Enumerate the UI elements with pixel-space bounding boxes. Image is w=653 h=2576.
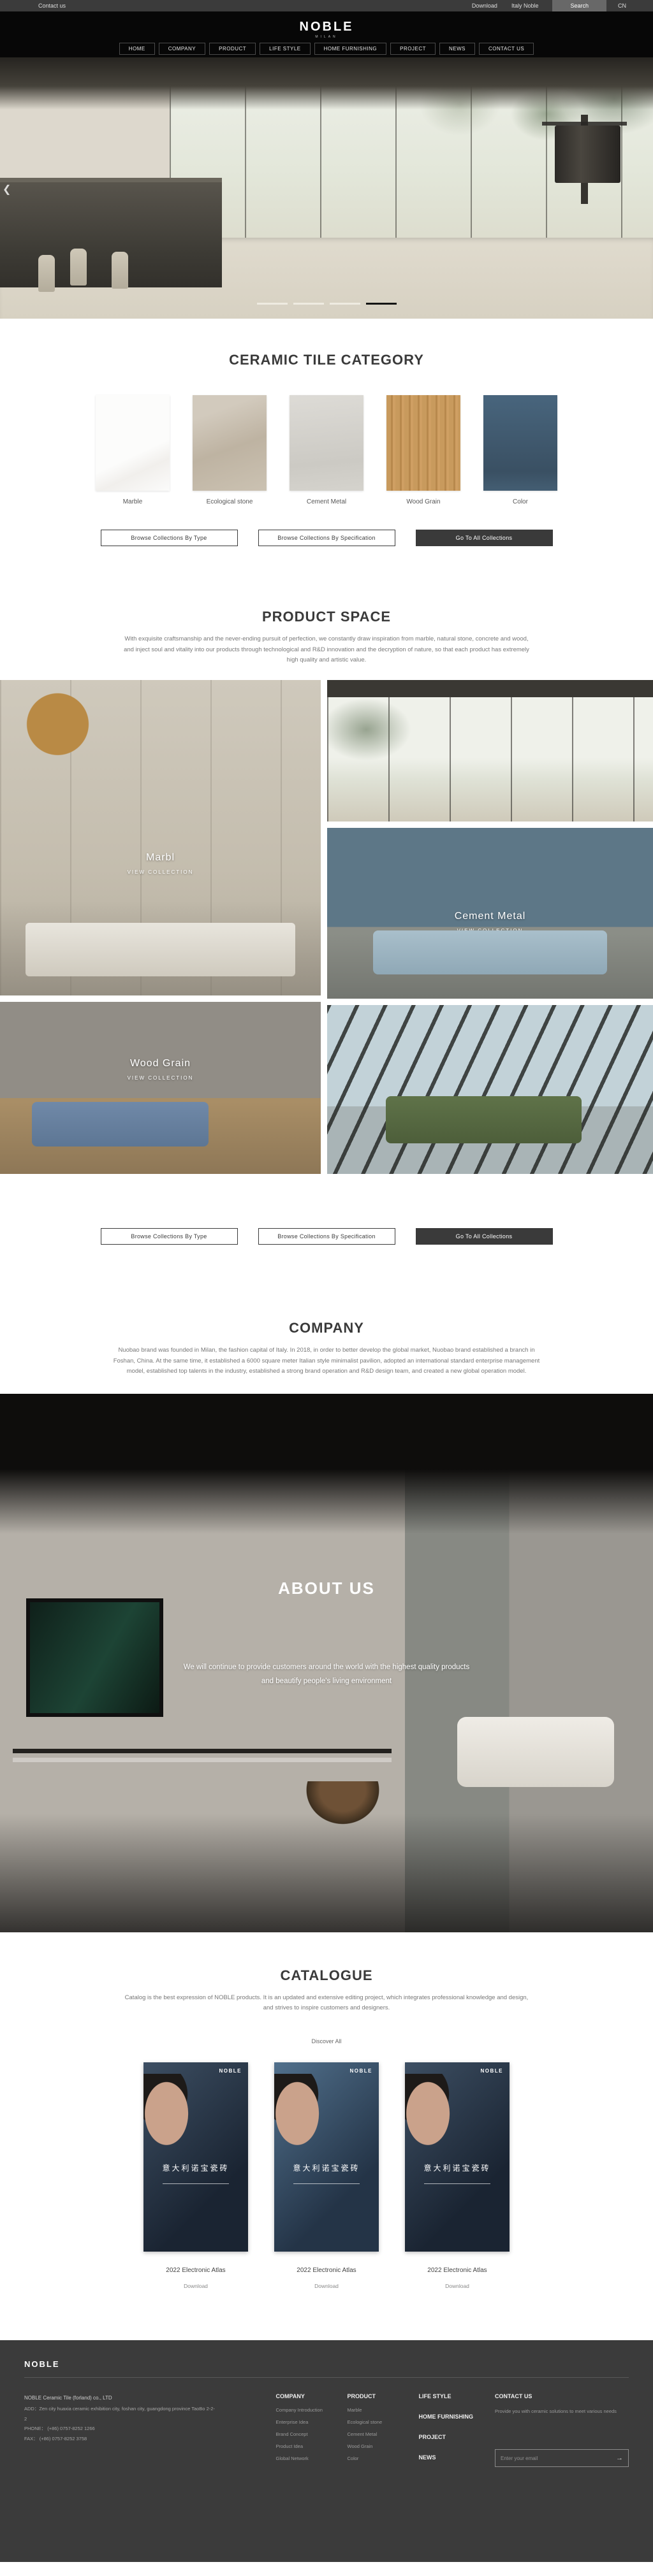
footer-head-life-style[interactable]: LIFE STYLE: [419, 2393, 474, 2399]
catalogue-card-2: NOBLE 意大利诺宝瓷砖 2022 Electronic Atlas Down…: [274, 2062, 379, 2289]
cover-noble-logo: NOBLE: [350, 2068, 373, 2074]
hero-bar-stool: [70, 249, 87, 286]
noble-logo-subtitle: MILAN: [0, 35, 653, 39]
category-tile-marble[interactable]: Marble: [96, 395, 170, 505]
gallery-label-title: Marbl: [0, 852, 321, 864]
newsletter-field: →: [495, 2449, 629, 2467]
catalogue-download-link[interactable]: Download: [143, 2283, 248, 2289]
category-tile-label: Marble: [96, 498, 170, 505]
nav-item-contact-us[interactable]: CONTACT US: [479, 43, 534, 55]
footer-col-contact: CONTACT US Provide you with ceramic solu…: [495, 2393, 629, 2475]
catalogue-download-link[interactable]: Download: [274, 2283, 379, 2289]
cover-rule: [293, 2183, 360, 2184]
showroom-tv: [26, 1598, 163, 1717]
about-us-line2: and beautify people's living environment: [0, 1674, 653, 1688]
cover-rule: [424, 2183, 491, 2184]
footer-head-news[interactable]: NEWS: [419, 2454, 474, 2461]
footer-noble-logo: NOBLE: [24, 2359, 629, 2369]
footer-phone: PHONE： (+86) 0757-8252 1266: [24, 2424, 216, 2434]
hero-clothes: [555, 126, 620, 183]
gallery-item-wood-grain[interactable]: Wood Grain VIEW COLLECTION: [0, 1002, 321, 1174]
category-tile-label: Cement Metal: [290, 498, 363, 505]
gallery-label-title: Cement Metal: [327, 911, 653, 922]
view-collection-link[interactable]: VIEW COLLECTION: [0, 869, 321, 875]
cover-cjk-title: 意大利诺宝瓷砖: [143, 2162, 248, 2173]
company-description: Nuobao brand was founded in Milan, the f…: [110, 1345, 543, 1377]
carousel-prev-icon[interactable]: ❮: [3, 183, 11, 196]
cover-noble-logo: NOBLE: [481, 2068, 504, 2074]
email-input[interactable]: [501, 2456, 616, 2461]
footer-link-marble[interactable]: Marble: [348, 2407, 397, 2413]
company-section: COMPANY Nuobao brand was founded in Mila…: [0, 1277, 653, 1394]
footer-company-info: NOBLE Ceramic Tile (forland) co., LTD AD…: [24, 2393, 216, 2475]
category-tile-label: Wood Grain: [386, 498, 460, 505]
carousel-dash-2[interactable]: [293, 303, 324, 305]
footer-fax: FAX： (+86) 0757-8252 3758: [24, 2434, 216, 2444]
showroom-shelf: [13, 1749, 392, 1753]
cover-noble-logo: NOBLE: [219, 2068, 242, 2074]
footer-link-company-introduction[interactable]: Company Introduction: [276, 2407, 326, 2413]
nav-item-product[interactable]: PRODUCT: [209, 43, 256, 55]
go-to-all-collections-button[interactable]: Go To All Collections: [416, 530, 553, 546]
view-collection-link[interactable]: VIEW COLLECTION: [0, 1075, 321, 1081]
category-tile-wood-grain[interactable]: Wood Grain: [386, 395, 460, 505]
catalogue-item-title: 2022 Electronic Atlas: [405, 2267, 510, 2274]
main-nav: HOME COMPANY PRODUCT LIFE STYLE HOME FUR…: [0, 43, 653, 55]
ecological-stone-swatch: [193, 395, 267, 491]
view-collection-link[interactable]: VIEW COLLECTION: [327, 928, 653, 934]
category-tile-cement-metal[interactable]: Cement Metal: [290, 395, 363, 505]
color-swatch: [483, 395, 557, 491]
carousel-dash-3[interactable]: [330, 303, 360, 305]
product-space-section: PRODUCT SPACE With exquisite craftsmansh…: [0, 580, 653, 1277]
product-space-title: PRODUCT SPACE: [0, 609, 653, 625]
gallery-item-terrace[interactable]: [327, 680, 653, 821]
about-us-line1: We will continue to provide customers ar…: [0, 1660, 653, 1674]
category-title: CERAMIC TILE CATEGORY: [0, 352, 653, 368]
browse-by-specification-button[interactable]: Browse Collections By Specification: [258, 1228, 395, 1245]
footer-address: ADD：Zen city huaxia ceramic exhibition c…: [24, 2404, 216, 2424]
gallery-label: Cement Metal VIEW COLLECTION: [327, 911, 653, 934]
carousel-dash-4-active[interactable]: [366, 303, 397, 305]
footer-link-cement-metal[interactable]: Cement Metal: [348, 2431, 397, 2437]
category-tile-ecological-stone[interactable]: Ecological stone: [193, 395, 267, 505]
category-tile-label: Ecological stone: [193, 498, 267, 505]
footer-head-project[interactable]: PROJECT: [419, 2434, 474, 2440]
go-to-all-collections-button[interactable]: Go To All Collections: [416, 1228, 553, 1245]
footer-link-global-network[interactable]: Global Network: [276, 2456, 326, 2461]
nav-item-home[interactable]: HOME: [119, 43, 155, 55]
footer-col-sections: LIFE STYLE HOME FURNISHING PROJECT NEWS: [419, 2393, 474, 2475]
catalogue-covers: NOBLE 意大利诺宝瓷砖 2022 Electronic Atlas Down…: [0, 2062, 653, 2289]
browse-by-type-button[interactable]: Browse Collections By Type: [101, 1228, 238, 1245]
catalogue-cover-2[interactable]: NOBLE 意大利诺宝瓷砖: [274, 2062, 379, 2252]
product-space-gallery: Marbl VIEW COLLECTION Wood Grain VIEW CO…: [0, 680, 653, 1174]
top-utility-bar: Contact us Download Italy Noble Search C…: [0, 0, 653, 11]
category-tile-label: Color: [483, 498, 557, 505]
cement-metal-swatch: [290, 395, 363, 491]
footer-link-enterprise-idea[interactable]: Enterprise Idea: [276, 2419, 326, 2425]
gallery-label: Marbl VIEW COLLECTION: [0, 852, 321, 875]
nav-item-life-style[interactable]: LIFE STYLE: [260, 43, 310, 55]
catalogue-download-link[interactable]: Download: [405, 2283, 510, 2289]
footer: NOBLE NOBLE Ceramic Tile (forland) co., …: [0, 2340, 653, 2562]
showroom-coffee-table: [300, 1781, 385, 1830]
catalogue-cover-1[interactable]: NOBLE 意大利诺宝瓷砖: [143, 2062, 248, 2252]
footer-col-product: PRODUCT Marble Ecological stone Cement M…: [348, 2393, 397, 2475]
footer-contact-text: Provide you with ceramic solutions to me…: [495, 2407, 629, 2416]
search-button[interactable]: Search: [552, 0, 606, 11]
catalogue-title: CATALOGUE: [0, 1967, 653, 1984]
nav-item-company[interactable]: COMPANY: [159, 43, 205, 55]
gallery-right-column: Cement Metal VIEW COLLECTION: [327, 680, 653, 1174]
discover-all-link[interactable]: Discover All: [298, 2038, 355, 2044]
marble-swatch: [96, 395, 170, 491]
catalogue-cover-3[interactable]: NOBLE 意大利诺宝瓷砖: [405, 2062, 510, 2252]
catalogue-card-3: NOBLE 意大利诺宝瓷砖 2022 Electronic Atlas Down…: [405, 2062, 510, 2289]
noble-logo[interactable]: NOBLE: [0, 11, 653, 34]
catalogue-card-1: NOBLE 意大利诺宝瓷砖 2022 Electronic Atlas Down…: [143, 2062, 248, 2289]
nav-item-news[interactable]: NEWS: [439, 43, 475, 55]
gallery-left-column: Marbl VIEW COLLECTION Wood Grain VIEW CO…: [0, 680, 321, 1174]
email-submit-arrow-icon[interactable]: →: [616, 2454, 623, 2462]
category-buttons: Browse Collections By Type Browse Collec…: [0, 530, 653, 546]
footer-divider: [24, 2377, 629, 2378]
product-space-description: With exquisite craftsmanship and the nev…: [122, 634, 531, 666]
footer-link-wood-grain[interactable]: Wood Grain: [348, 2443, 397, 2449]
gallery-item-marble[interactable]: Marbl VIEW COLLECTION: [0, 680, 321, 995]
category-tile-color[interactable]: Color: [483, 395, 557, 505]
carousel-dash-1[interactable]: [257, 303, 288, 305]
footer-link-product-idea[interactable]: Product Idea: [276, 2443, 326, 2449]
footer-col-company: COMPANY Company Introduction Enterprise …: [276, 2393, 326, 2475]
footer-link-ecological-stone[interactable]: Ecological stone: [348, 2419, 397, 2425]
cover-cjk-title: 意大利诺宝瓷砖: [274, 2162, 379, 2173]
gallery-item-cement-metal[interactable]: Cement Metal VIEW COLLECTION: [327, 828, 653, 999]
footer-head-company[interactable]: COMPANY: [276, 2393, 326, 2399]
nav-item-home-furnishing[interactable]: HOME FURNISHING: [314, 43, 387, 55]
contact-us-link[interactable]: Contact us: [38, 3, 66, 9]
about-us-text: We will continue to provide customers ar…: [0, 1660, 653, 1689]
showroom-sofa: [457, 1717, 614, 1787]
language-toggle-cn[interactable]: CN: [618, 3, 626, 9]
footer-body: NOBLE Ceramic Tile (forland) co., LTD AD…: [24, 2393, 629, 2475]
hero-ceiling: [0, 57, 653, 110]
footer-columns: COMPANY Company Introduction Enterprise …: [216, 2393, 629, 2475]
gallery-label-title: Wood Grain: [0, 1058, 321, 1069]
ceramic-tile-category-section: CERAMIC TILE CATEGORY Marble Ecological …: [0, 319, 653, 580]
about-us-banner: ABOUT US We will continue to provide cus…: [0, 1394, 653, 1932]
catalogue-item-title: 2022 Electronic Atlas: [143, 2267, 248, 2274]
footer-link-color[interactable]: Color: [348, 2456, 397, 2461]
catalogue-section: CATALOGUE Catalog is the best expression…: [0, 1932, 653, 2340]
category-tiles: Marble Ecological stone Cement Metal Woo…: [0, 395, 653, 505]
catalogue-description: Catalog is the best expression of NOBLE …: [122, 1993, 531, 2014]
hero-bar-stool: [38, 255, 55, 292]
wood-grain-swatch: [386, 395, 460, 491]
download-link[interactable]: Download: [472, 3, 497, 9]
footer-head-contact-us[interactable]: CONTACT US: [495, 2393, 629, 2399]
gallery-item-green-sofa[interactable]: [327, 1005, 653, 1174]
catalogue-item-title: 2022 Electronic Atlas: [274, 2267, 379, 2274]
cover-rule: [163, 2183, 230, 2184]
gallery-label: Wood Grain VIEW COLLECTION: [0, 1058, 321, 1081]
footer-head-product[interactable]: PRODUCT: [348, 2393, 397, 2399]
cover-cjk-title: 意大利诺宝瓷砖: [405, 2162, 510, 2173]
footer-link-brand-concept[interactable]: Brand Concept: [276, 2431, 326, 2437]
browse-by-type-button[interactable]: Browse Collections By Type: [101, 530, 238, 546]
catalogue-bottom-spacer: [0, 2289, 653, 2340]
browse-by-specification-button[interactable]: Browse Collections By Specification: [258, 530, 395, 546]
company-title: COMPANY: [0, 1320, 653, 1336]
footer-head-home-furnishing[interactable]: HOME FURNISHING: [419, 2413, 474, 2420]
hero-carousel: ❮: [0, 57, 653, 319]
hero-bar-stool: [112, 252, 128, 289]
product-space-buttons: Browse Collections By Type Browse Collec…: [0, 1228, 653, 1277]
nav-item-project[interactable]: PROJECT: [390, 43, 436, 55]
footer-company-name: NOBLE Ceramic Tile (forland) co., LTD: [24, 2393, 216, 2404]
italy-noble-link[interactable]: Italy Noble: [511, 3, 539, 9]
about-us-title: ABOUT US: [0, 1579, 653, 1598]
site-header: NOBLE MILAN HOME COMPANY PRODUCT LIFE ST…: [0, 11, 653, 57]
carousel-pagination: [0, 303, 653, 305]
